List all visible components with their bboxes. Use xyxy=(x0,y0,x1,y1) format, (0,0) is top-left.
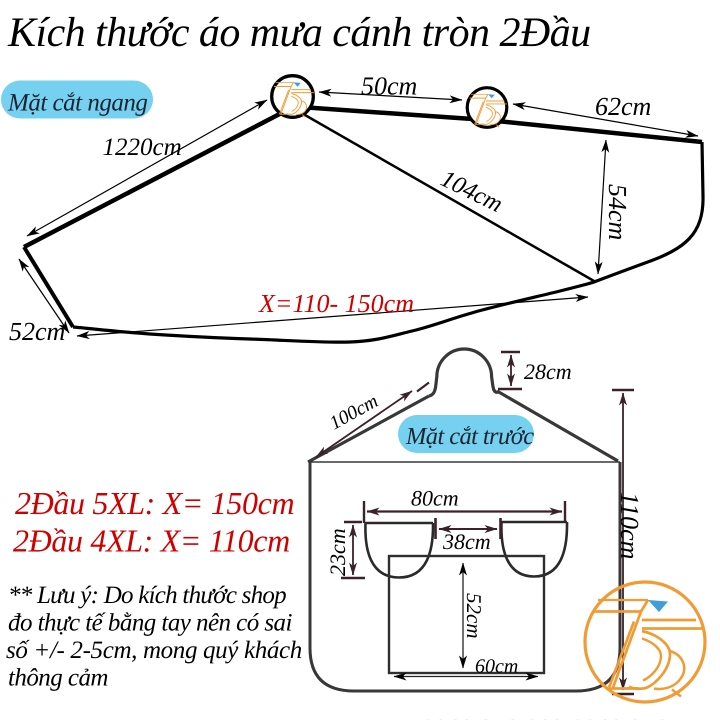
svg-text:28cm: 28cm xyxy=(524,359,572,384)
svg-text:Mặt cắt ngang: Mặt cắt ngang xyxy=(7,90,147,117)
svg-text:** Lưu ý: Do kích thước shop: ** Lưu ý: Do kích thước shop xyxy=(8,582,286,609)
svg-text:23cm: 23cm xyxy=(325,528,350,576)
svg-text:2Đầu 4XL: X= 110cm: 2Đầu 4XL: X= 110cm xyxy=(13,523,290,559)
svg-text:1220cm: 1220cm xyxy=(103,134,182,161)
svg-text:50cm: 50cm xyxy=(361,72,417,101)
svg-text:X=110- 150cm: X=110- 150cm xyxy=(258,289,414,318)
svg-text:đo thực tế bằng tay nên có sai: đo thực tế bằng tay nên có sai xyxy=(8,610,292,637)
svg-text:2Đầu 5XL: X= 150cm: 2Đầu 5XL: X= 150cm xyxy=(15,485,294,521)
svg-text:Kích thước áo mưa cánh tròn 2Đ: Kích thước áo mưa cánh tròn 2Đầu xyxy=(7,10,591,56)
svg-text:52cm: 52cm xyxy=(9,317,65,346)
svg-text:số +/- 2-5cm, mong quý khách: số +/- 2-5cm, mong quý khách xyxy=(6,637,302,664)
svg-text:110cm: 110cm xyxy=(615,492,644,559)
svg-text:0969 278 883 0969 278: 0969 278 883 0969 278 xyxy=(420,714,667,720)
svg-text:thông cảm: thông cảm xyxy=(8,665,108,692)
svg-text:38cm: 38cm xyxy=(442,529,491,554)
svg-text:54cm: 54cm xyxy=(603,184,632,240)
svg-text:60cm: 60cm xyxy=(475,656,518,678)
svg-text:80cm: 80cm xyxy=(411,486,459,511)
svg-text:52cm: 52cm xyxy=(462,593,486,639)
svg-text:62cm: 62cm xyxy=(595,92,651,121)
svg-text:Mặt cắt trước: Mặt cắt trước xyxy=(405,423,534,450)
